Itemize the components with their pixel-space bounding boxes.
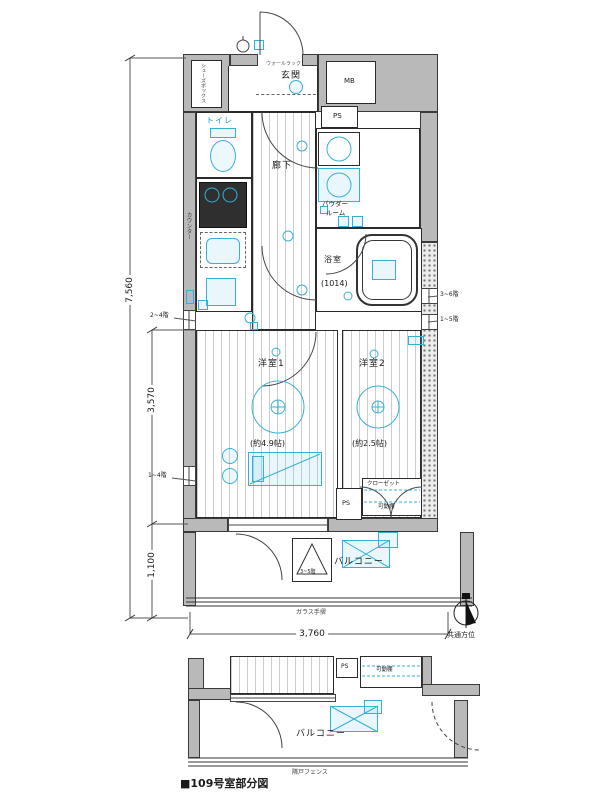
window-left-upper	[183, 310, 196, 330]
partial-wall-left-horizontal	[188, 688, 232, 700]
washing-machine-box	[318, 132, 360, 166]
pipe-space-top-label: PS	[333, 113, 342, 120]
dim-balcony-depth: 1,100	[147, 550, 157, 580]
pipe-space-mid-label: PS	[342, 500, 350, 507]
evacuation-hatch-box	[292, 538, 332, 582]
hallway-label: 廊下	[272, 162, 292, 171]
wall-right-shared-hatched	[421, 242, 438, 524]
bath-faucet-icon	[372, 260, 396, 280]
stool-icon-1	[222, 448, 238, 464]
floor-plan: 玄関 ウォールラック シューズボックス MB PS トイレ 廊下 カウンター パ…	[0, 0, 600, 800]
partial-wall-right-horizontal	[422, 684, 480, 696]
stool-icon-2	[222, 468, 238, 484]
wall-entrance-right	[302, 54, 318, 66]
meter-box-label: MB	[344, 78, 355, 85]
bathroom-label: 浴室	[324, 256, 342, 264]
partial-balcony-door-arc	[236, 702, 282, 748]
kitchen-sink-icon	[206, 238, 240, 264]
toilet-tank-icon	[210, 128, 236, 138]
partial-balcony-right-pier	[454, 700, 468, 758]
balcony-door-arc	[236, 534, 282, 580]
partial-balcony-left-pier	[188, 700, 200, 758]
washbasin-icon	[318, 168, 360, 202]
stove-icon	[199, 182, 247, 228]
compass-label: 共通方位	[447, 632, 475, 639]
balcony-right-pier	[460, 532, 474, 606]
annotation-left-lower: 1~4階	[148, 473, 167, 479]
powder-switch-icon-2	[352, 216, 363, 227]
entrance-tag-icon	[237, 36, 249, 52]
room1-size-label: (約4.9帖)	[250, 440, 285, 448]
bathroom-size-label: (1014)	[321, 280, 348, 288]
window-right-upper	[421, 288, 438, 304]
partial-shelf-label: 可動棚	[376, 668, 393, 674]
wall-entrance-left	[230, 54, 258, 66]
wall-rack-label: ウォールラック	[266, 62, 301, 67]
partial-fence-label: 隣戸フェンス	[292, 770, 328, 776]
closet-label: クローゼット	[367, 482, 400, 488]
partial-pipe-space-label: PS	[341, 664, 348, 670]
laundry-faucet-icon	[378, 532, 398, 548]
counter-label: カウンター	[185, 212, 191, 268]
glass-rail-label: ガラス手摺	[296, 610, 326, 616]
shoe-box-cabinet	[191, 60, 222, 108]
entrance-downlight-icon	[289, 80, 303, 94]
wall-rack-dashed-line	[256, 94, 316, 95]
annotation-right-upper: 3~6階	[440, 292, 459, 298]
toilet-label: トイレ	[206, 117, 233, 125]
annotation-right-lower: 1~5階	[440, 317, 459, 323]
powder-room-label-2: ルーム	[326, 210, 345, 217]
room2-label: 洋室2	[359, 360, 386, 369]
wall-bottom-left-pier	[183, 518, 228, 532]
dim-living-depth: 3,570	[147, 385, 157, 415]
ac-unit-icon	[408, 336, 424, 345]
hallway-floor	[252, 112, 316, 330]
dim-total-depth: 7,560	[125, 275, 135, 305]
partial-room-floor	[230, 656, 334, 694]
balcony-left-pier	[183, 532, 196, 606]
bed-pillow-icon	[252, 456, 264, 482]
shelf-label: 可動棚	[378, 505, 395, 511]
entrance-door-arc	[260, 12, 303, 55]
powder-room-label-1: パウダー	[322, 201, 348, 208]
wall-right-upper	[420, 112, 438, 242]
balcony-sliding-window	[228, 518, 328, 532]
toilet-bowl-icon	[210, 140, 236, 172]
powder-switch-icon-1	[338, 216, 349, 227]
entrance-label: 玄関	[281, 72, 301, 81]
entrance-floor	[228, 66, 318, 112]
refrigerator-icon	[206, 278, 236, 306]
window-left-lower	[183, 466, 196, 486]
room1-switch-icon	[250, 322, 258, 330]
balcony-label: バルコニー	[334, 558, 384, 567]
dim-width: 3,760	[296, 629, 328, 639]
shoe-box-label: シューズボックス	[200, 63, 205, 107]
partial-laundry-faucet-icon	[364, 700, 382, 714]
room1-label: 洋室1	[258, 360, 285, 369]
kitchen-switch-icon	[198, 300, 208, 310]
hatch-floors-label: 3~5階	[300, 570, 316, 575]
window-right-lower	[421, 314, 438, 330]
entrance-switch-icon	[254, 40, 264, 50]
partial-window	[230, 694, 336, 702]
caption: ■109号室部分図	[180, 778, 268, 789]
intercom-icon	[186, 290, 194, 304]
annotation-left-upper: 2~4階	[150, 313, 169, 319]
partial-balcony-label: バルコニー	[296, 730, 346, 739]
room2-size-label: (約2.5帖)	[352, 440, 387, 448]
wall-bottom-right	[328, 518, 438, 532]
